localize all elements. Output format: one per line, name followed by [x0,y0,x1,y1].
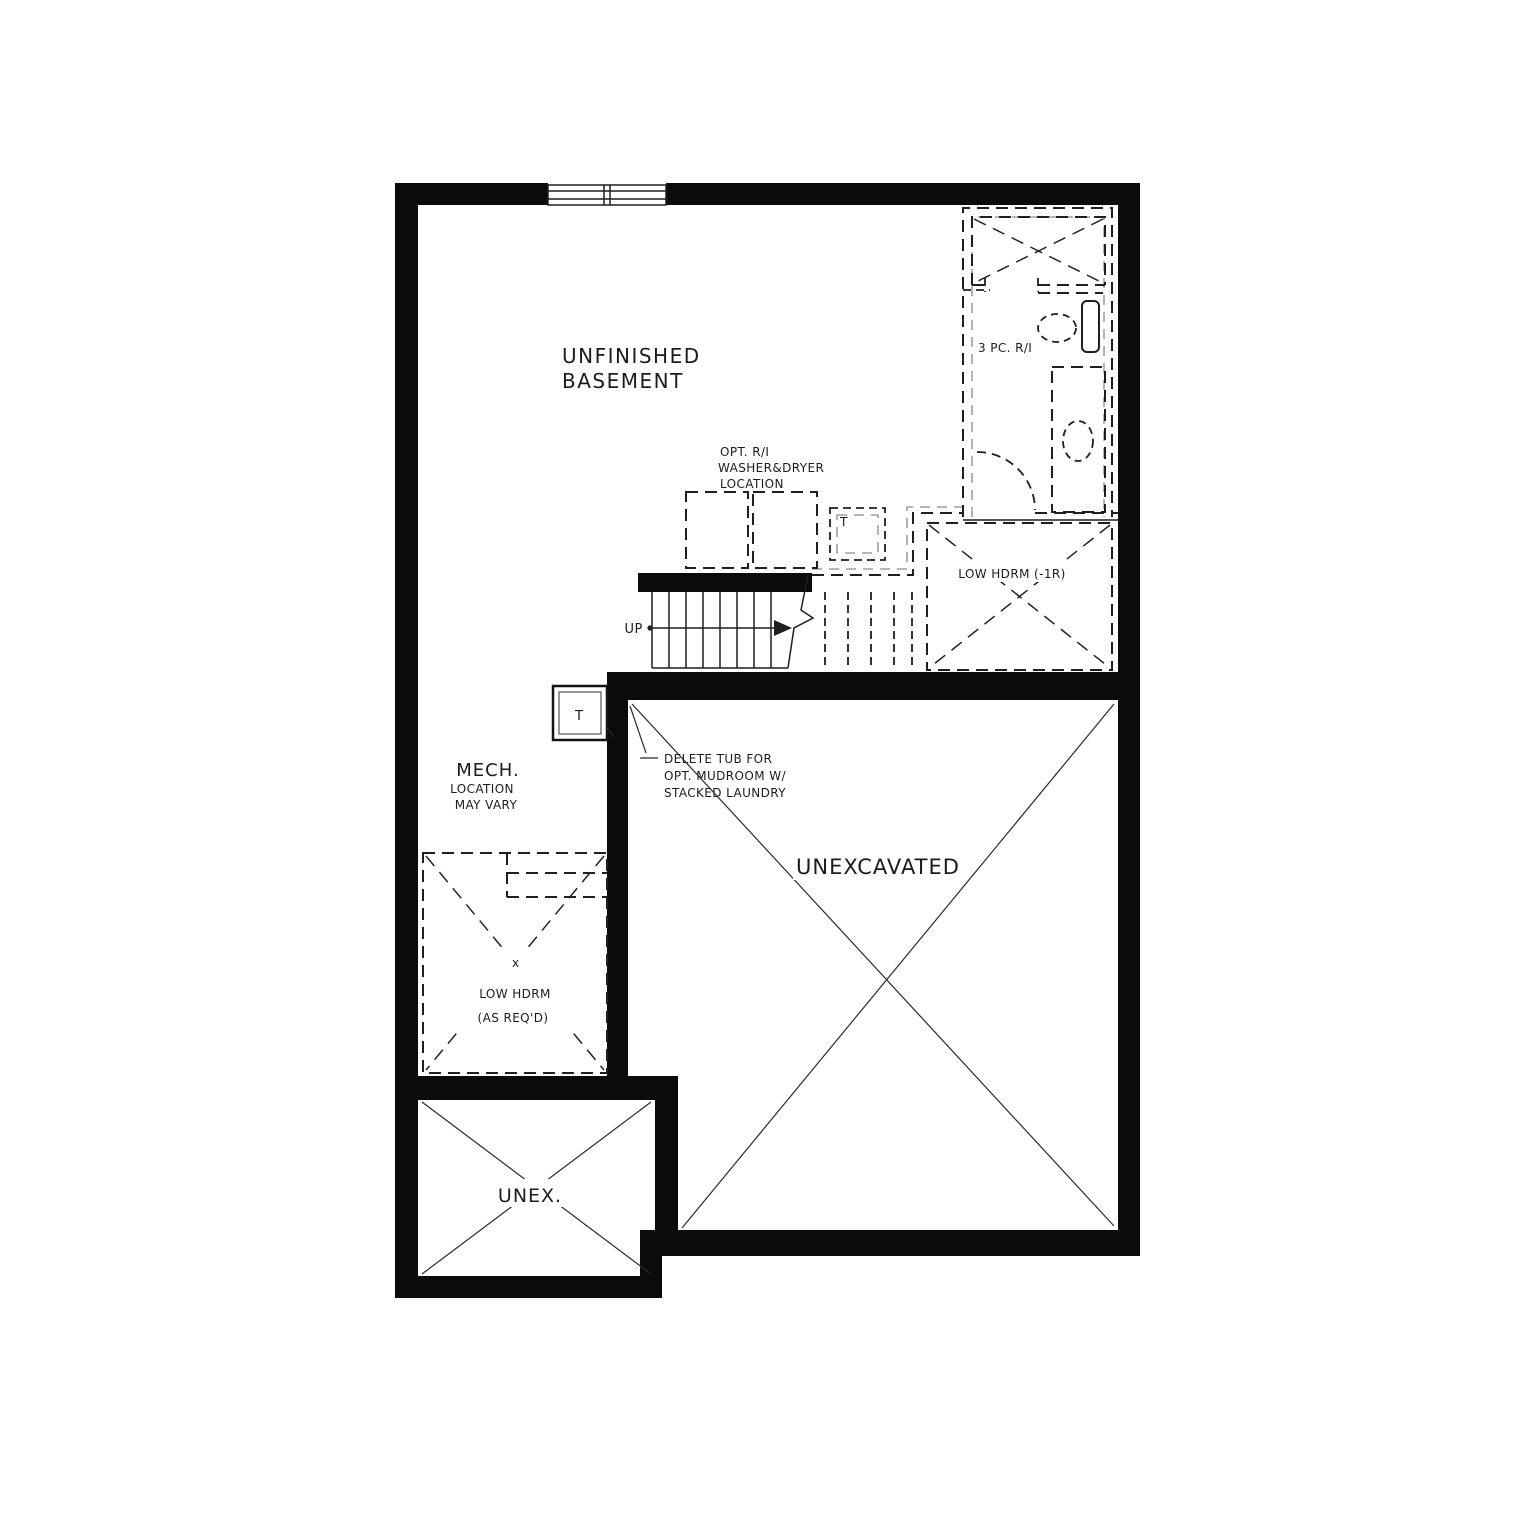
right-wall [1118,183,1140,1256]
corridor-outline [812,507,963,575]
svg-text:MAY VARY: MAY VARY [455,798,518,812]
svg-text:DELETE TUB FOR: DELETE TUB FOR [664,752,772,766]
mech-area: x LOW HDRM (AS REQ'D) MECH. LOCATION MAY… [423,760,607,1073]
washer-note-line3: LOCATION [720,477,784,491]
unex-room-right-wall [655,1076,678,1232]
shower-rough-in [972,217,1105,292]
svg-text:UNFINISHED: UNFINISHED [562,344,701,368]
stair-landing-wall [638,573,812,592]
unex-step-connector-wall [640,1230,662,1298]
svg-text:MECH.: MECH. [456,760,519,781]
washer-dryer-rough-in: OPT. R/I WASHER&DRYER LOCATION [686,445,824,568]
low-hdrm-stairs-label: LOW HDRM (-1R) [958,567,1065,581]
floor-plan-page: UP OPT. R/I WASHER&DRYER LOCATION T T [0,0,1536,1536]
top-wall-right-segment [666,183,1140,205]
unexcavated-bottom-wall [640,1230,1140,1256]
unex-room-top-wall [395,1076,678,1100]
t-marker-corridor: T [830,508,885,560]
floor-plan-drawing: UP OPT. R/I WASHER&DRYER LOCATION T T [0,0,1536,1536]
t-marker-mech: T [553,686,614,740]
washer-box [686,492,748,568]
up-label: UP [624,622,643,637]
washer-note-line2: WASHER&DRYER [718,461,824,475]
tub-rough-in [1052,367,1105,512]
left-wall [395,183,418,1298]
unexcavated-label: UNEXCAVATED [796,855,960,879]
interior-wall-horizontal [607,672,1140,700]
low-hdrm-mech-line1: LOW HDRM [479,987,551,1001]
unexcavated-room: UNEXCAVATED [632,704,1114,1228]
t-marker-mech-label: T [574,709,583,724]
low-hdrm-mech-line2: (AS REQ'D) [478,1011,549,1025]
t-marker-corridor-label: T [839,515,848,529]
svg-text:OPT. MUDROOM W/: OPT. MUDROOM W/ [664,769,786,783]
mech-note: MECH. LOCATION MAY VARY [450,760,520,812]
bathroom-door-arc [977,452,1035,510]
washer-note-line1: OPT. R/I [720,445,769,459]
low-hdrm-mech-marker: x [512,956,520,970]
dryer-box [753,492,817,568]
bathroom-label: 3 PC. R/I [978,341,1032,355]
svg-text:BASEMENT: BASEMENT [562,369,684,393]
svg-text:STACKED LAUNDRY: STACKED LAUNDRY [664,786,786,800]
unex-small-room: UNEX. [422,1102,651,1274]
svg-text:LOCATION: LOCATION [450,782,514,796]
unex-small-label: UNEX. [498,1185,562,1207]
toilet-rough-in [1038,301,1099,352]
bathroom-rough-in: 3 PC. R/I [963,208,1118,520]
unfinished-basement-label: UNFINISHED BASEMENT [562,344,701,393]
unex-room-bottom-wall [395,1276,662,1298]
stairs-dashed-continuation [825,592,912,668]
low-hdrm-stairs-area: LOW HDRM (-1R) [927,523,1112,670]
window-symbol [548,185,666,205]
